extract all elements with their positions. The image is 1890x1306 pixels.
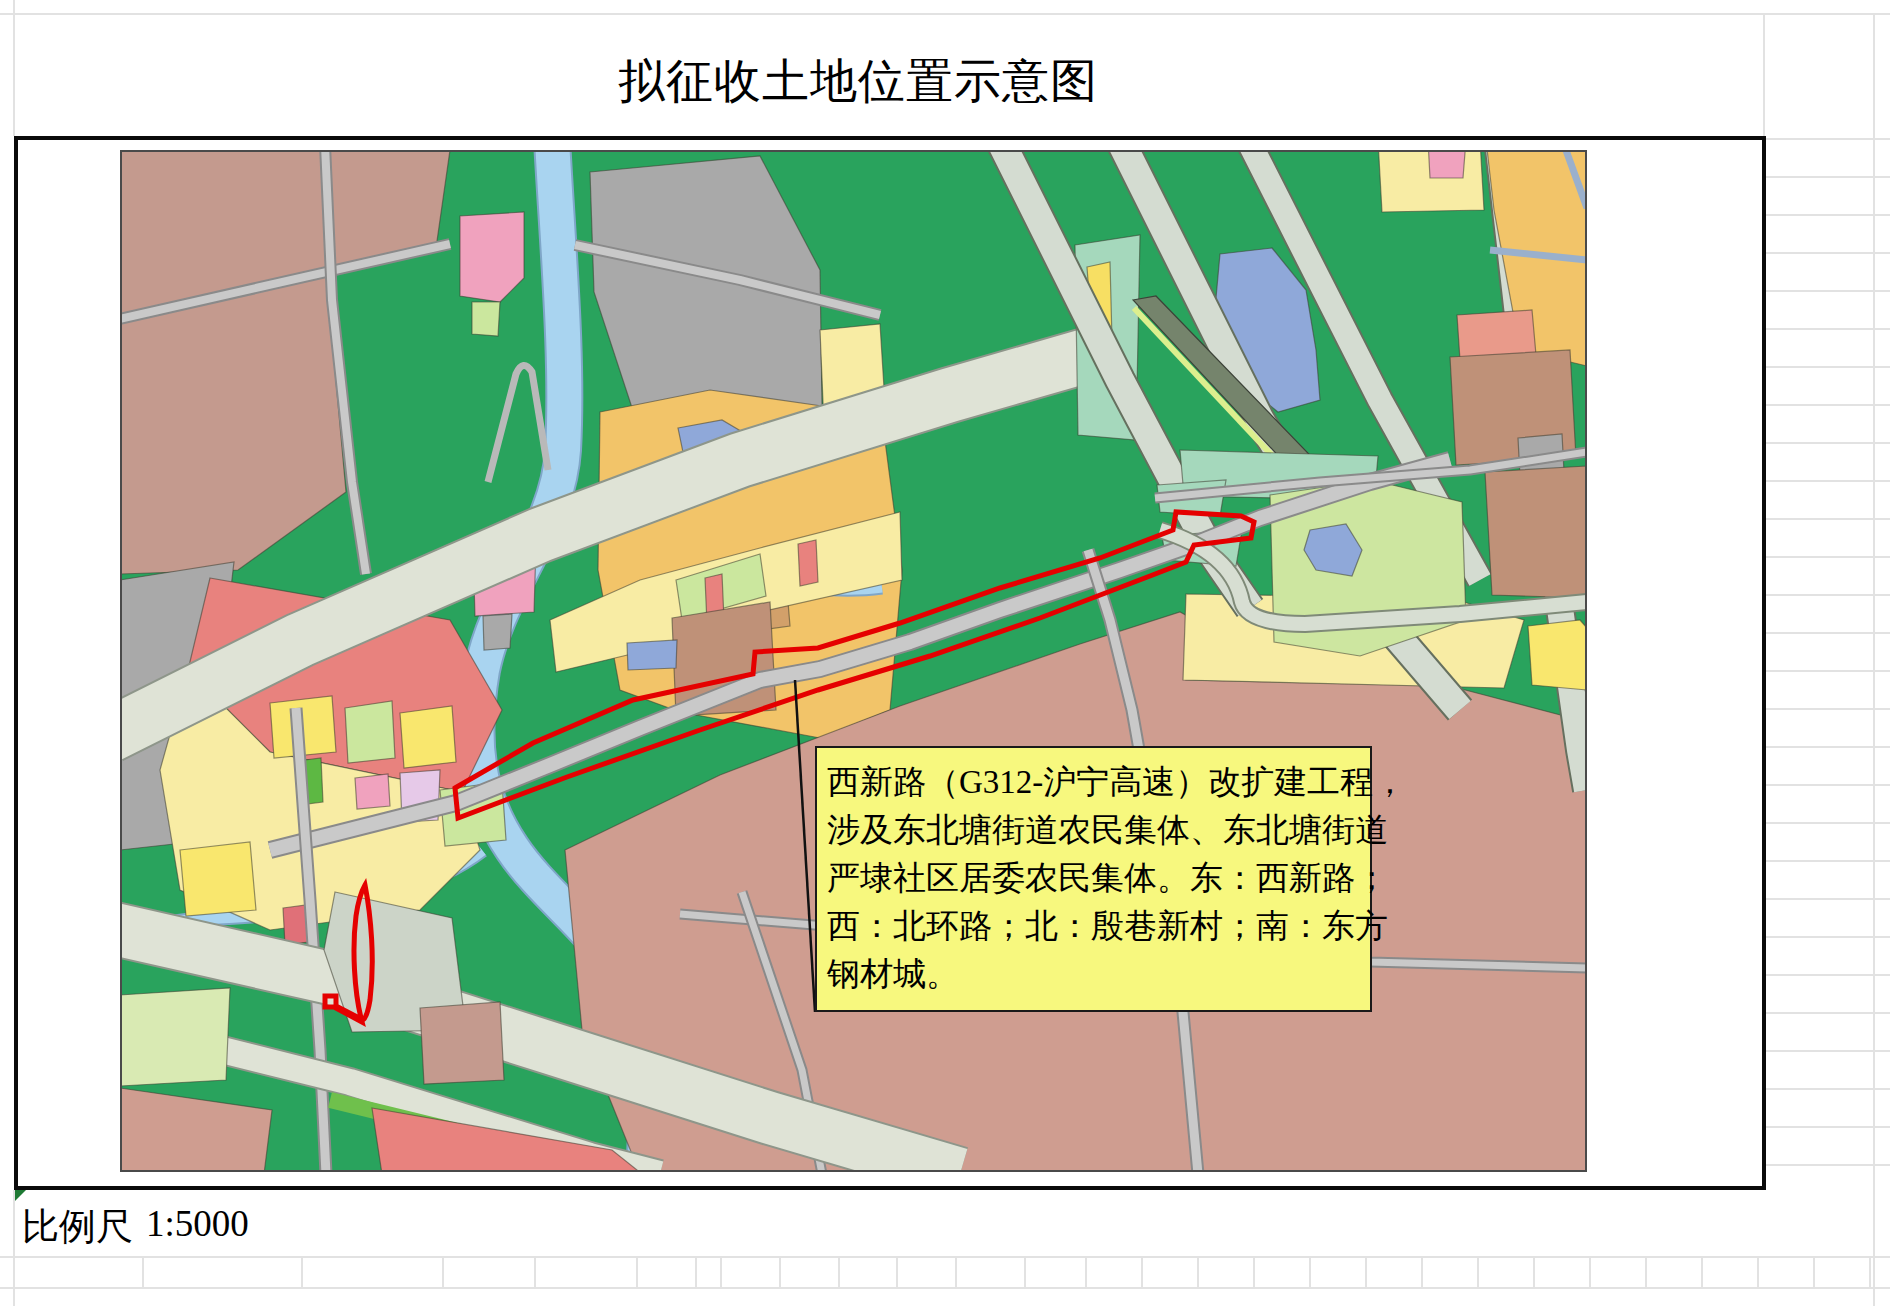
cell-error-marker-icon: [15, 1190, 26, 1201]
lime-parcel-1: [345, 701, 395, 763]
annotation-text-line: 涉及东北塘街道农民集体、东北塘街道: [827, 806, 1360, 854]
document-page: 拟征收土地位置示意图 西新路（G312-沪宁高速）改扩建工程，涉及东北塘街道农民…: [0, 0, 1890, 1306]
salmon-sliver-2: [798, 540, 818, 586]
scale-row: 比例尺 1:5000: [0, 1186, 1890, 1257]
pink-small-parcel: [355, 774, 390, 809]
annotation-text-line: 严埭社区居委农民集体。东：西新路；: [827, 854, 1360, 902]
scale-label: 比例尺: [22, 1202, 133, 1252]
lime-under-pink: [472, 302, 500, 336]
yellow-parcel-2: [400, 706, 456, 768]
yellow-parcel-3: [180, 842, 256, 916]
annotation-text-line: 西：北环路；北：殷巷新村；南：东方: [827, 902, 1360, 950]
brown-block-right-2: [1485, 466, 1587, 598]
map-image: [120, 150, 1587, 1172]
pink-topright: [1428, 150, 1466, 178]
annotation-text-line: 钢材城。: [827, 950, 1360, 998]
scale-value: 1:5000: [146, 1202, 249, 1245]
annotation-box: 西新路（G312-沪宁高速）改扩建工程，涉及东北塘街道农民集体、东北塘街道严埭社…: [815, 746, 1372, 1012]
palelime-bottomleft: [120, 988, 230, 1086]
blue-square-parcel: [627, 640, 677, 670]
page-title: 拟征收土地位置示意图: [618, 50, 1098, 113]
gray-small-parcel: [483, 614, 512, 650]
annotation-text-line: 西新路（G312-沪宁高速）改扩建工程，: [827, 758, 1360, 806]
mauve-small-bottomleft: [420, 1002, 504, 1084]
yellow-patch-right: [1528, 620, 1587, 690]
